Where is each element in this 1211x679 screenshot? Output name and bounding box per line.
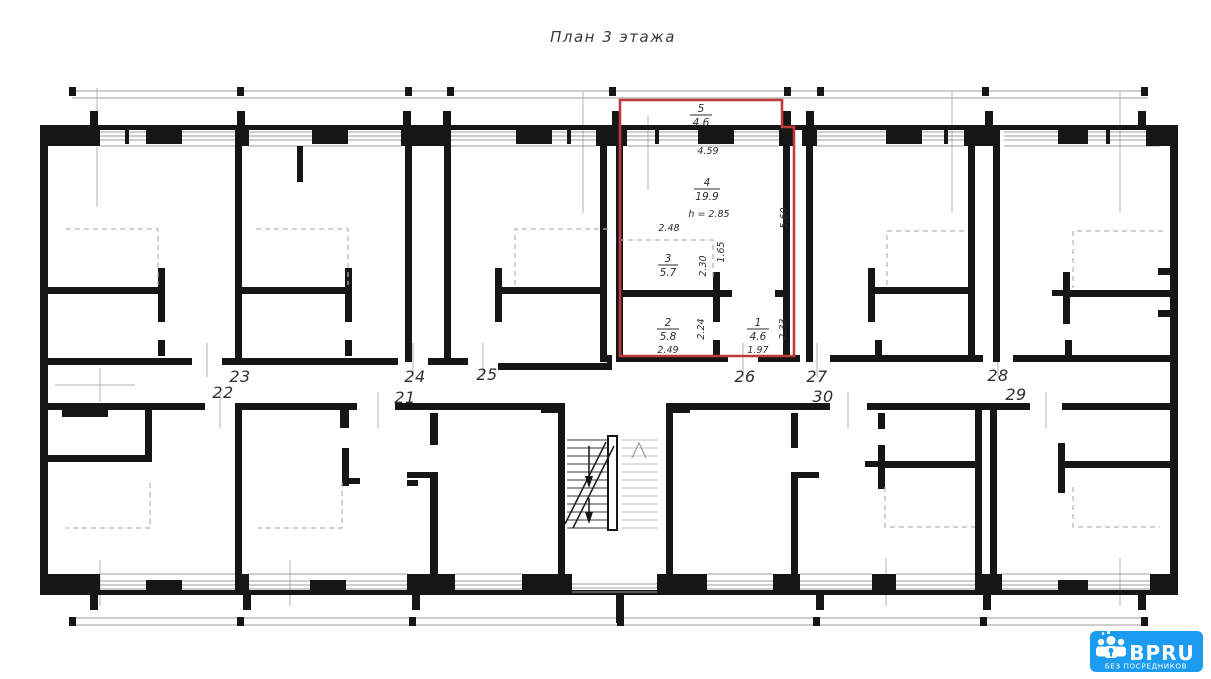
ceiling-height-label: h = 2.85 xyxy=(688,209,729,220)
stair-down-arrows xyxy=(585,446,593,524)
dim-room1-depth: 2.33 xyxy=(778,318,789,339)
dimension-labels: 4.59 2.48 2.49 1.97 5.60 1.65 2.30 2.24 … xyxy=(657,146,790,356)
svg-text:4.6: 4.6 xyxy=(750,331,767,343)
apartment-number-29: 29 xyxy=(1005,385,1026,404)
dim-depth: 5.60 xyxy=(779,207,790,228)
floor-plan-drawing: 21 22 23 24 25 26 27 28 29 30 5 4.6 4 19… xyxy=(0,0,1211,679)
dim-room2-width: 2.49 xyxy=(657,345,678,356)
svg-text:2: 2 xyxy=(665,317,672,329)
floor-plan-page: 21 22 23 24 25 26 27 28 29 30 5 4.6 4 19… xyxy=(0,0,1211,679)
apartment-number-21: 21 xyxy=(394,388,415,407)
apartment-number-27: 27 xyxy=(806,367,828,386)
bpru-logo[interactable]: BPRU БЕЗ ПОСРЕДНИКОВ xyxy=(1090,631,1203,672)
svg-text:19.9: 19.9 xyxy=(695,191,719,203)
svg-text:4.6: 4.6 xyxy=(693,117,710,129)
svg-text:5.7: 5.7 xyxy=(660,267,677,279)
svg-text:4: 4 xyxy=(704,177,711,189)
dim-room4-width: 2.48 xyxy=(658,223,679,234)
svg-text:5.8: 5.8 xyxy=(660,331,677,343)
stairs xyxy=(565,436,658,592)
room-label-5: 5 4.6 xyxy=(690,103,712,129)
apartment-number-25: 25 xyxy=(476,365,497,384)
apartment-number-26: 26 xyxy=(734,367,755,386)
svg-text:1: 1 xyxy=(755,317,762,329)
apartment-number-24: 24 xyxy=(404,367,425,386)
dim-hall-width: 1.65 xyxy=(716,241,727,262)
dim-room1-width: 1.97 xyxy=(747,345,768,356)
apartment-number-30: 30 xyxy=(812,387,833,406)
apartment-number-23: 23 xyxy=(229,367,250,386)
windows-top xyxy=(100,128,1160,146)
dim-room2-depth: 2.24 xyxy=(696,318,707,339)
logo-tagline: БЕЗ ПОСРЕДНИКОВ xyxy=(1105,662,1187,671)
room-label-2: 2 5.8 xyxy=(657,317,679,343)
room-label-3: 3 5.7 xyxy=(658,253,678,279)
room-label-4: 4 19.9 xyxy=(694,177,720,203)
apartment-numbers: 21 22 23 24 25 26 27 28 29 30 xyxy=(212,365,1026,407)
svg-text:5: 5 xyxy=(698,103,705,115)
page-title: План 3 этажа xyxy=(550,28,676,46)
dim-balcony-width: 4.59 xyxy=(697,146,718,157)
room-label-1: 1 4.6 xyxy=(747,317,769,343)
apartment-number-28: 28 xyxy=(987,366,1008,385)
svg-text:3: 3 xyxy=(665,253,672,265)
dim-room3-depth: 2.30 xyxy=(698,255,709,276)
